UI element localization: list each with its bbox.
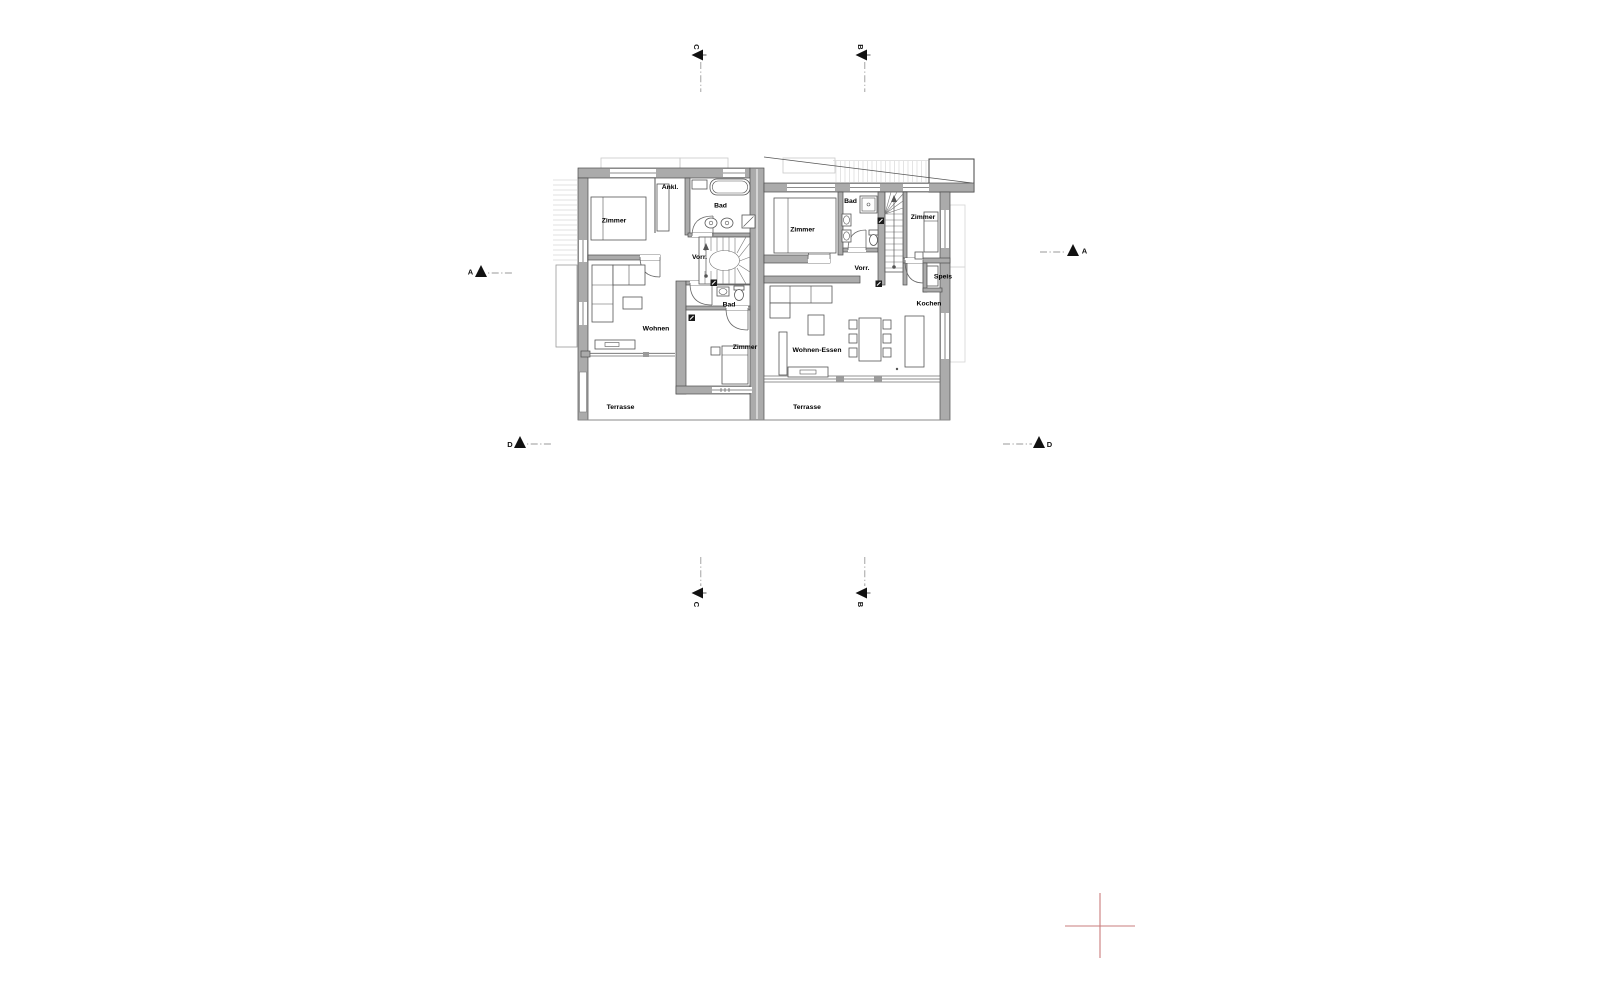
left-trellis-hatch bbox=[553, 180, 577, 260]
wall-wohnen-east bbox=[676, 281, 686, 394]
sideboard-wohnen bbox=[595, 340, 635, 349]
shaft-marker bbox=[876, 281, 883, 288]
dining-set bbox=[849, 318, 891, 361]
coffee-table-wohnen bbox=[623, 297, 642, 309]
chair bbox=[849, 320, 857, 329]
wardrobe-ankleide bbox=[657, 184, 669, 231]
installation-shaft-left bbox=[742, 215, 755, 228]
room-label-zimmer-s: Zimmer bbox=[733, 344, 758, 351]
sofa-wohnen-essen bbox=[770, 286, 832, 318]
room-label-bad-top: Bad bbox=[714, 203, 727, 210]
door-speis bbox=[905, 260, 923, 283]
wall-ankl-bad-divider bbox=[685, 178, 690, 235]
section-marker-a-left: A bbox=[468, 265, 513, 277]
room-label-wohnen: Wohnen bbox=[643, 326, 670, 333]
drawing-canvas: Zimmer Ankl. Bad Vorr. Wohnen Bad Zimmer… bbox=[0, 0, 1600, 1003]
section-marker-c-bottom: C bbox=[692, 557, 707, 608]
room-label-ankleide: Ankl. bbox=[662, 184, 679, 191]
room-label-zimmer-w-right: Zimmer bbox=[790, 227, 815, 234]
room-label-vorraum-right: Vorr. bbox=[855, 265, 870, 272]
double-washbasin bbox=[705, 218, 733, 228]
shaft-marker bbox=[878, 218, 885, 225]
sideboard-right bbox=[788, 367, 828, 377]
section-marker-a-right: A bbox=[1040, 244, 1088, 256]
left-exterior-wall-panel bbox=[556, 265, 577, 347]
washbasin-bad-lower bbox=[717, 287, 729, 296]
svg-text:A: A bbox=[1082, 247, 1088, 256]
bad-cabinet bbox=[692, 180, 707, 189]
room-label-terrasse-left: Terrasse bbox=[607, 404, 635, 411]
bathtub bbox=[710, 179, 750, 195]
chair bbox=[849, 334, 857, 343]
sofa-wohnen bbox=[592, 265, 645, 322]
room-label-vorraum-left: Vorr. bbox=[692, 254, 707, 261]
bed-zimmer-w-right bbox=[774, 198, 836, 253]
chair bbox=[883, 348, 891, 357]
chair bbox=[849, 348, 857, 357]
door-gap-bad-right bbox=[848, 248, 866, 252]
room-label-zimmer-nw: Zimmer bbox=[602, 218, 627, 225]
right-exterior-panel-lower bbox=[950, 267, 965, 362]
wall-speis-west bbox=[923, 263, 927, 292]
nightstand bbox=[711, 347, 720, 355]
section-marker-d-left: D bbox=[507, 436, 552, 449]
dining-table bbox=[859, 318, 881, 361]
floor-plan-svg: Zimmer Ankl. Bad Vorr. Wohnen Bad Zimmer… bbox=[0, 0, 1600, 1003]
terrace-west-opening bbox=[580, 372, 587, 412]
door-gap-bad-top bbox=[692, 233, 712, 237]
svg-text:D: D bbox=[1047, 440, 1053, 449]
tv-board bbox=[779, 332, 787, 375]
floor-dot bbox=[896, 368, 898, 370]
shower-bad-right bbox=[860, 196, 877, 213]
kitchen-island bbox=[905, 316, 924, 367]
section-marker-d-right: D bbox=[1003, 436, 1053, 449]
nightstand bbox=[915, 252, 923, 259]
room-label-bad-right: Bad bbox=[844, 198, 857, 205]
door-bad-lower bbox=[690, 283, 712, 305]
svg-text:B: B bbox=[856, 602, 865, 608]
shaft-marker bbox=[711, 280, 718, 287]
room-label-wohnen-essen: Wohnen-Essen bbox=[793, 347, 842, 354]
right-exterior-panel-upper bbox=[950, 205, 965, 267]
shaft-marker bbox=[689, 315, 696, 322]
section-marker-c-top: C bbox=[692, 44, 707, 92]
window-wohnen-south bbox=[581, 351, 675, 357]
wall-speis-south bbox=[923, 288, 942, 292]
svg-text:B: B bbox=[856, 44, 865, 50]
upper-floor-roof-edge-line bbox=[764, 157, 972, 183]
room-label-speis: Speis bbox=[934, 274, 952, 281]
room-label-bad-lower: Bad bbox=[723, 302, 736, 309]
svg-text:D: D bbox=[507, 440, 513, 449]
room-label-kochen: Kochen bbox=[917, 301, 942, 308]
door-gap-zimmerw bbox=[808, 255, 830, 263]
room-label-terrasse-right: Terrasse bbox=[793, 404, 821, 411]
door-zimmer-s bbox=[726, 308, 748, 330]
svg-text:A: A bbox=[468, 268, 474, 277]
room-label-zimmer-e: Zimmer bbox=[911, 214, 936, 221]
section-marker-b-top: B bbox=[856, 44, 871, 92]
section-marker-b-bottom: B bbox=[856, 557, 871, 608]
door-gap-zimmer-nw bbox=[640, 255, 660, 260]
registration-cross bbox=[1065, 893, 1135, 958]
coffee-table-right bbox=[808, 315, 824, 335]
chair bbox=[883, 334, 891, 343]
wall-stair-west-right bbox=[878, 192, 885, 285]
wc-bad-lower bbox=[734, 286, 744, 301]
bed-zimmer-s bbox=[711, 346, 748, 384]
wc-bad-right bbox=[869, 230, 878, 246]
svg-text:C: C bbox=[692, 602, 701, 608]
wall-wohnen-essen-north bbox=[764, 276, 860, 283]
stair-right-unit bbox=[885, 192, 903, 272]
chair bbox=[883, 320, 891, 329]
svg-text:C: C bbox=[692, 44, 701, 50]
